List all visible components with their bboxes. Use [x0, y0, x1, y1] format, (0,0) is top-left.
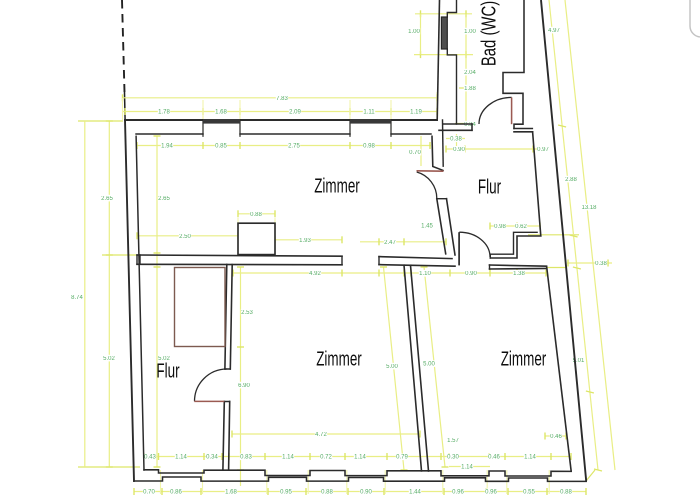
svg-text:1.45: 1.45: [421, 224, 433, 230]
svg-text:1.14: 1.14: [461, 465, 473, 471]
svg-text:8.74: 8.74: [71, 295, 83, 301]
svg-text:0.96: 0.96: [485, 490, 497, 496]
svg-text:0.70: 0.70: [409, 150, 421, 156]
svg-text:0.55: 0.55: [523, 490, 535, 496]
svg-text:13.18: 13.18: [581, 205, 597, 211]
svg-text:1.78: 1.78: [158, 110, 170, 116]
svg-text:2.53: 2.53: [241, 310, 253, 316]
svg-text:0.90: 0.90: [465, 271, 477, 277]
svg-text:0.88: 0.88: [560, 490, 572, 496]
svg-text:0.62: 0.62: [515, 224, 527, 230]
svg-text:Bad (WC): Bad (WC): [477, 1, 500, 66]
svg-text:0.38: 0.38: [595, 261, 607, 267]
svg-text:2.09: 2.09: [289, 110, 301, 116]
svg-text:7.83: 7.83: [276, 96, 288, 102]
svg-text:0.43: 0.43: [144, 455, 156, 461]
svg-text:1.00: 1.00: [408, 29, 420, 35]
svg-text:4.92: 4.92: [309, 271, 321, 277]
svg-text:0.46: 0.46: [488, 455, 500, 461]
svg-text:1.94: 1.94: [161, 144, 173, 150]
svg-text:1.10: 1.10: [419, 271, 431, 277]
svg-text:0.30: 0.30: [447, 455, 459, 461]
svg-text:1.44: 1.44: [409, 490, 421, 496]
svg-text:Flur: Flur: [478, 174, 501, 198]
svg-text:4.72: 4.72: [315, 432, 327, 438]
svg-text:0.70: 0.70: [143, 490, 155, 496]
svg-text:0.72: 0.72: [320, 455, 332, 461]
svg-text:4.97: 4.97: [548, 28, 560, 34]
svg-text:1.14: 1.14: [175, 455, 187, 461]
svg-text:2.65: 2.65: [101, 196, 113, 202]
svg-text:0.97: 0.97: [537, 147, 549, 153]
svg-text:0.34: 0.34: [206, 455, 218, 461]
svg-text:0.86: 0.86: [170, 490, 182, 496]
svg-text:0.38: 0.38: [450, 137, 462, 143]
svg-text:2.88: 2.88: [565, 177, 577, 183]
svg-text:0.98: 0.98: [363, 144, 375, 150]
svg-text:0.85: 0.85: [215, 144, 227, 150]
svg-text:1.68: 1.68: [225, 490, 237, 496]
svg-text:5.00: 5.00: [386, 364, 398, 370]
svg-text:0.96: 0.96: [452, 490, 464, 496]
svg-text:2.47: 2.47: [384, 240, 396, 246]
svg-text:Flur: Flur: [156, 358, 179, 382]
svg-text:Zimmer: Zimmer: [316, 347, 362, 371]
svg-text:1.14: 1.14: [524, 455, 536, 461]
svg-text:1.11: 1.11: [363, 110, 375, 116]
svg-text:0.34: 0.34: [464, 122, 476, 128]
svg-text:5.02: 5.02: [103, 356, 115, 362]
svg-text:2.04: 2.04: [464, 70, 476, 76]
svg-text:2.50: 2.50: [179, 234, 191, 240]
svg-text:1.00: 1.00: [464, 29, 476, 35]
svg-text:1.68: 1.68: [215, 110, 227, 116]
svg-text:1.57: 1.57: [447, 438, 459, 444]
svg-text:6.90: 6.90: [238, 383, 250, 389]
svg-text:Zimmer: Zimmer: [501, 347, 547, 371]
svg-text:2.75: 2.75: [288, 144, 300, 150]
svg-text:1.93: 1.93: [299, 238, 311, 244]
svg-text:0.95: 0.95: [280, 490, 292, 496]
svg-text:1.19: 1.19: [410, 110, 422, 116]
svg-text:0.79: 0.79: [396, 455, 408, 461]
svg-text:0.90: 0.90: [360, 490, 372, 496]
svg-text:0.83: 0.83: [240, 455, 252, 461]
svg-text:5.00: 5.00: [423, 362, 435, 368]
svg-text:1.14: 1.14: [354, 455, 366, 461]
svg-text:1.88: 1.88: [464, 86, 476, 92]
svg-text:1.38: 1.38: [513, 271, 525, 277]
svg-text:Zimmer: Zimmer: [314, 173, 360, 197]
svg-text:0.90: 0.90: [453, 147, 465, 153]
svg-text:0.98: 0.98: [494, 224, 506, 230]
svg-text:0.88: 0.88: [250, 212, 262, 218]
svg-text:0.88: 0.88: [321, 490, 333, 496]
svg-text:1.14: 1.14: [282, 455, 294, 461]
svg-text:0.46: 0.46: [550, 434, 562, 440]
svg-text:2.65: 2.65: [158, 196, 170, 202]
